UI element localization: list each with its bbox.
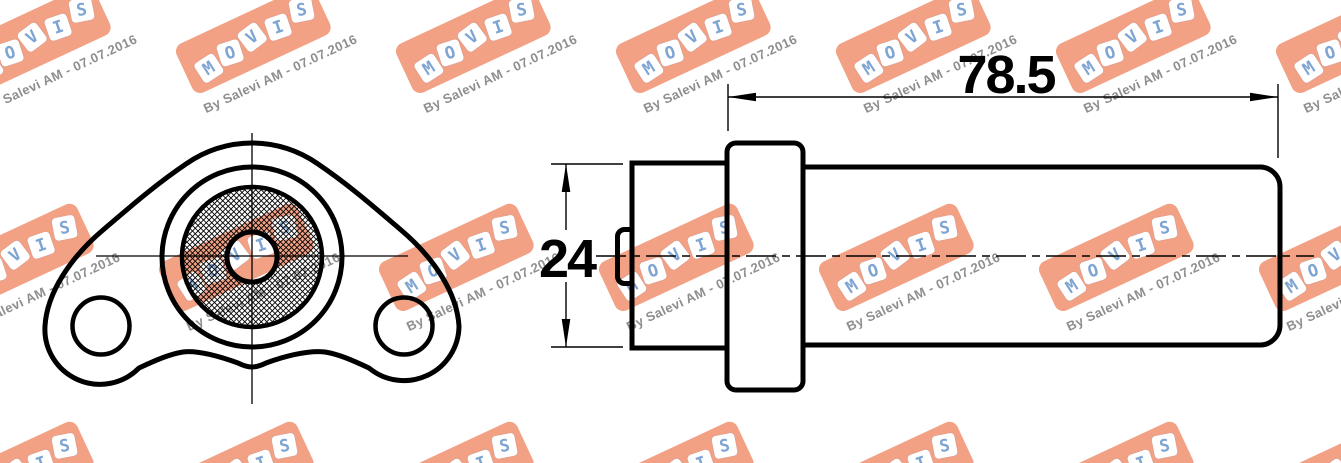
watermark-letter-tile: S xyxy=(710,432,737,459)
movis-watermark-stamp: MOVIS By Salevi AM - 07.07.2016 xyxy=(362,398,593,463)
watermark-tile-row: MOVIS xyxy=(0,419,97,463)
watermark-tile-row: MOVIS xyxy=(376,419,537,463)
watermark-tile-row: MOVIS xyxy=(1256,201,1341,314)
movis-watermark-stamp: MOVIS By Salevi AM - 07.07.2016 xyxy=(582,398,813,463)
movis-watermark-stamp: MOVIS By Salevi AM - 07.07.2016 xyxy=(802,398,1033,463)
watermark-letter-tile: S xyxy=(270,214,297,241)
movis-watermark-stamp: MOVIS By Salevi AM - 07.07.2016 xyxy=(362,180,593,353)
movis-watermark-stamp: MOVIS By Salevi AM - 07.07.2016 xyxy=(379,0,610,134)
watermark-letter-tile: I xyxy=(26,230,55,259)
watermark-letter-tile: V xyxy=(218,457,250,463)
watermark-letter-tile: V xyxy=(1318,457,1341,463)
watermark-letter-tile: I xyxy=(263,12,292,41)
movis-watermark-stamp: MOVIS By Salevi AM - 07.07.2016 xyxy=(0,398,154,463)
watermark-letter-tile: S xyxy=(67,0,94,23)
watermark-letter-tile: I xyxy=(43,12,72,41)
watermark-letter-tile: V xyxy=(1098,457,1130,463)
watermark-letter-tile: S xyxy=(490,432,517,459)
watermark-letter-tile: I xyxy=(26,448,55,463)
watermark-letter-tile: S xyxy=(287,0,314,23)
watermark-letter-tile: I xyxy=(1143,12,1172,41)
movis-watermark-stamp: MOVIS By Salevi AM - 07.07.2016 xyxy=(0,0,171,134)
movis-watermark-stamp: MOVIS By Salevi AM - 07.07.2016 xyxy=(599,0,830,134)
watermark-letter-tile: S xyxy=(710,214,737,241)
watermark-letter-tile: I xyxy=(466,448,495,463)
watermark-letter-tile: I xyxy=(1126,448,1155,463)
watermark-letter-tile: I xyxy=(246,448,275,463)
watermark-letter-tile: I xyxy=(1126,230,1155,259)
movis-watermark-stamp: MOVIS By Salevi AM - 07.07.2016 xyxy=(1242,180,1341,353)
watermark-tile-row: MOVIS xyxy=(1256,419,1341,463)
watermark-letter-tile: S xyxy=(1150,432,1177,459)
watermark-letter-tile: S xyxy=(947,0,974,23)
watermark-letter-tile: V xyxy=(0,239,31,271)
watermark-letter-tile: I xyxy=(246,230,275,259)
watermark-letter-tile: V xyxy=(658,457,690,463)
watermark-letter-tile: V xyxy=(878,457,910,463)
movis-watermark-stamp: MOVIS By Salevi AM - 07.07.2016 xyxy=(0,180,154,353)
watermark-letter-tile: S xyxy=(50,432,77,459)
watermark-letter-tile: I xyxy=(483,12,512,41)
watermark-letter-tile: S xyxy=(490,214,517,241)
watermark-tile-row: MOVIS xyxy=(816,419,977,463)
watermark-layer: MOVIS By Salevi AM - 07.07.2016 MOVIS By… xyxy=(0,0,1341,463)
watermark-letter-tile: V xyxy=(438,457,470,463)
watermark-letter-tile: I xyxy=(923,12,952,41)
watermark-letter-tile: I xyxy=(686,230,715,259)
movis-watermark-stamp: MOVIS By Salevi AM - 07.07.2016 xyxy=(1259,0,1341,134)
movis-watermark-stamp: MOVIS By Salevi AM - 07.07.2016 xyxy=(1022,398,1253,463)
watermark-letter-tile: S xyxy=(507,0,534,23)
watermark-letter-tile: S xyxy=(270,432,297,459)
movis-watermark-stamp: MOVIS By Salevi AM - 07.07.2016 xyxy=(819,0,1050,134)
watermark-tile-row: MOVIS xyxy=(1036,419,1197,463)
watermark-letter-tile: S xyxy=(50,214,77,241)
movis-watermark-stamp: MOVIS By Salevi AM - 07.07.2016 xyxy=(582,180,813,353)
watermark-letter-tile: I xyxy=(906,230,935,259)
watermark-letter-tile: I xyxy=(466,230,495,259)
movis-watermark-stamp: MOVIS By Salevi AM - 07.07.2016 xyxy=(1022,180,1253,353)
watermark-letter-tile: S xyxy=(727,0,754,23)
watermark-letter-tile: S xyxy=(1167,0,1194,23)
watermark-letter-tile: V xyxy=(0,457,31,463)
watermark-letter-tile: O xyxy=(0,38,24,67)
watermark-letter-tile: I xyxy=(703,12,732,41)
movis-watermark-stamp: MOVIS By Salevi AM - 07.07.2016 xyxy=(802,180,1033,353)
movis-watermark-stamp: MOVIS By Salevi AM - 07.07.2016 xyxy=(1039,0,1270,134)
watermark-letter-tile: I xyxy=(686,448,715,463)
movis-watermark-stamp: MOVIS By Salevi AM - 07.07.2016 xyxy=(142,180,373,353)
watermark-letter-tile: I xyxy=(906,448,935,463)
technical-drawing-page: 78.5 24 MOVIS By Salevi AM - 07.07.2016 … xyxy=(0,0,1341,463)
watermark-letter-tile: S xyxy=(930,432,957,459)
watermark-letter-tile: S xyxy=(930,214,957,241)
watermark-letter-tile: S xyxy=(1150,214,1177,241)
watermark-tile-row: MOVIS xyxy=(596,419,757,463)
movis-watermark-stamp: MOVIS By Salevi AM - 07.07.2016 xyxy=(159,0,390,134)
watermark-tile-row: MOVIS xyxy=(156,419,317,463)
watermark-tile-row: MOVIS xyxy=(1273,0,1341,96)
movis-watermark-stamp: MOVIS By Salevi AM - 07.07.2016 xyxy=(142,398,373,463)
movis-watermark-stamp: MOVIS By Salevi AM - 07.07.2016 xyxy=(1242,398,1341,463)
